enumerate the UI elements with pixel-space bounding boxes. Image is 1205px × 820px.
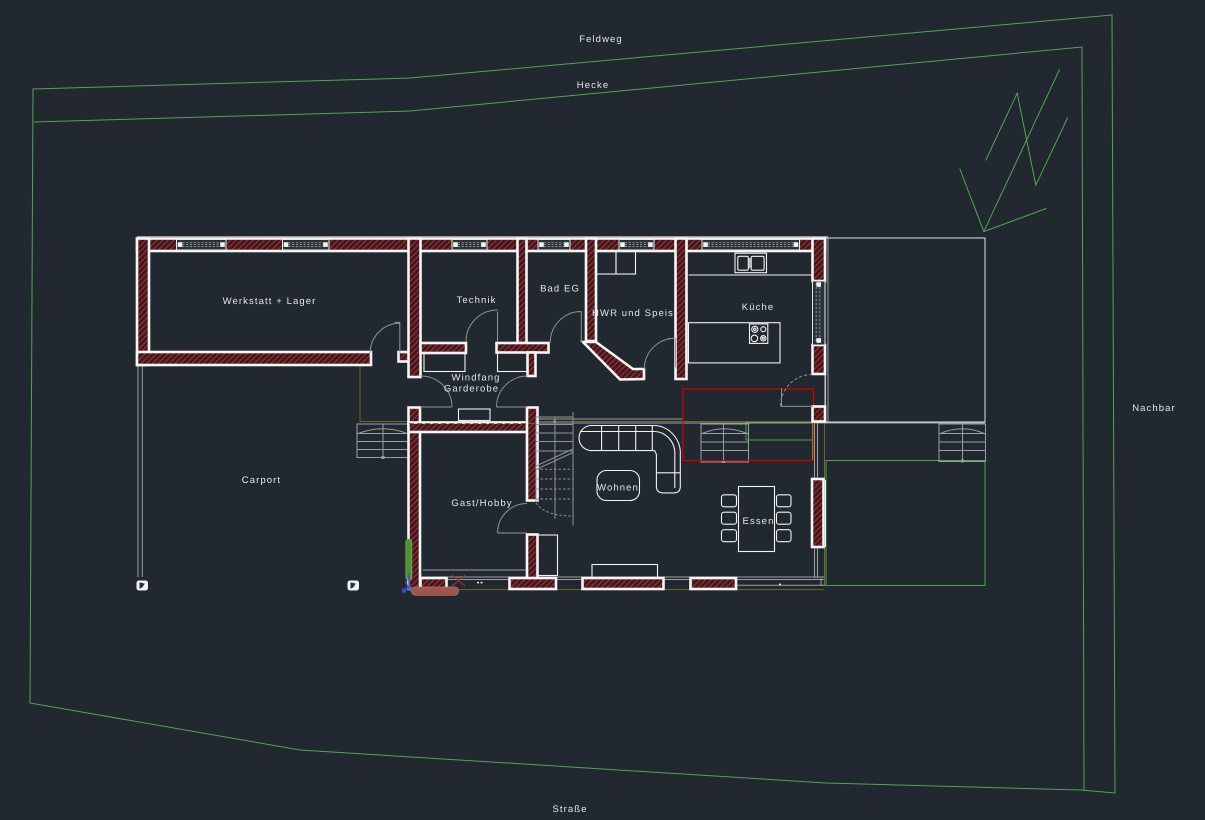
svg-text:Windfang: Windfang — [452, 373, 501, 384]
svg-text:Garderobe: Garderobe — [444, 384, 499, 395]
svg-text:Wohnen: Wohnen — [597, 483, 639, 494]
svg-text:HWR und Speis: HWR und Speis — [592, 308, 674, 319]
svg-text:Küche: Küche — [742, 302, 774, 313]
svg-text:Essen: Essen — [743, 516, 775, 527]
svg-text:Straße: Straße — [552, 804, 587, 815]
svg-text:Werkstatt + Lager: Werkstatt + Lager — [223, 296, 317, 307]
svg-text:Feldweg: Feldweg — [579, 34, 623, 45]
svg-text:Gast/Hobby: Gast/Hobby — [451, 498, 512, 509]
svg-text:Technik: Technik — [457, 295, 497, 306]
svg-text:Hecke: Hecke — [577, 80, 609, 91]
svg-text:Nachbar: Nachbar — [1132, 403, 1176, 414]
svg-text:Carport: Carport — [242, 475, 281, 486]
svg-text:Bad EG: Bad EG — [540, 284, 580, 295]
